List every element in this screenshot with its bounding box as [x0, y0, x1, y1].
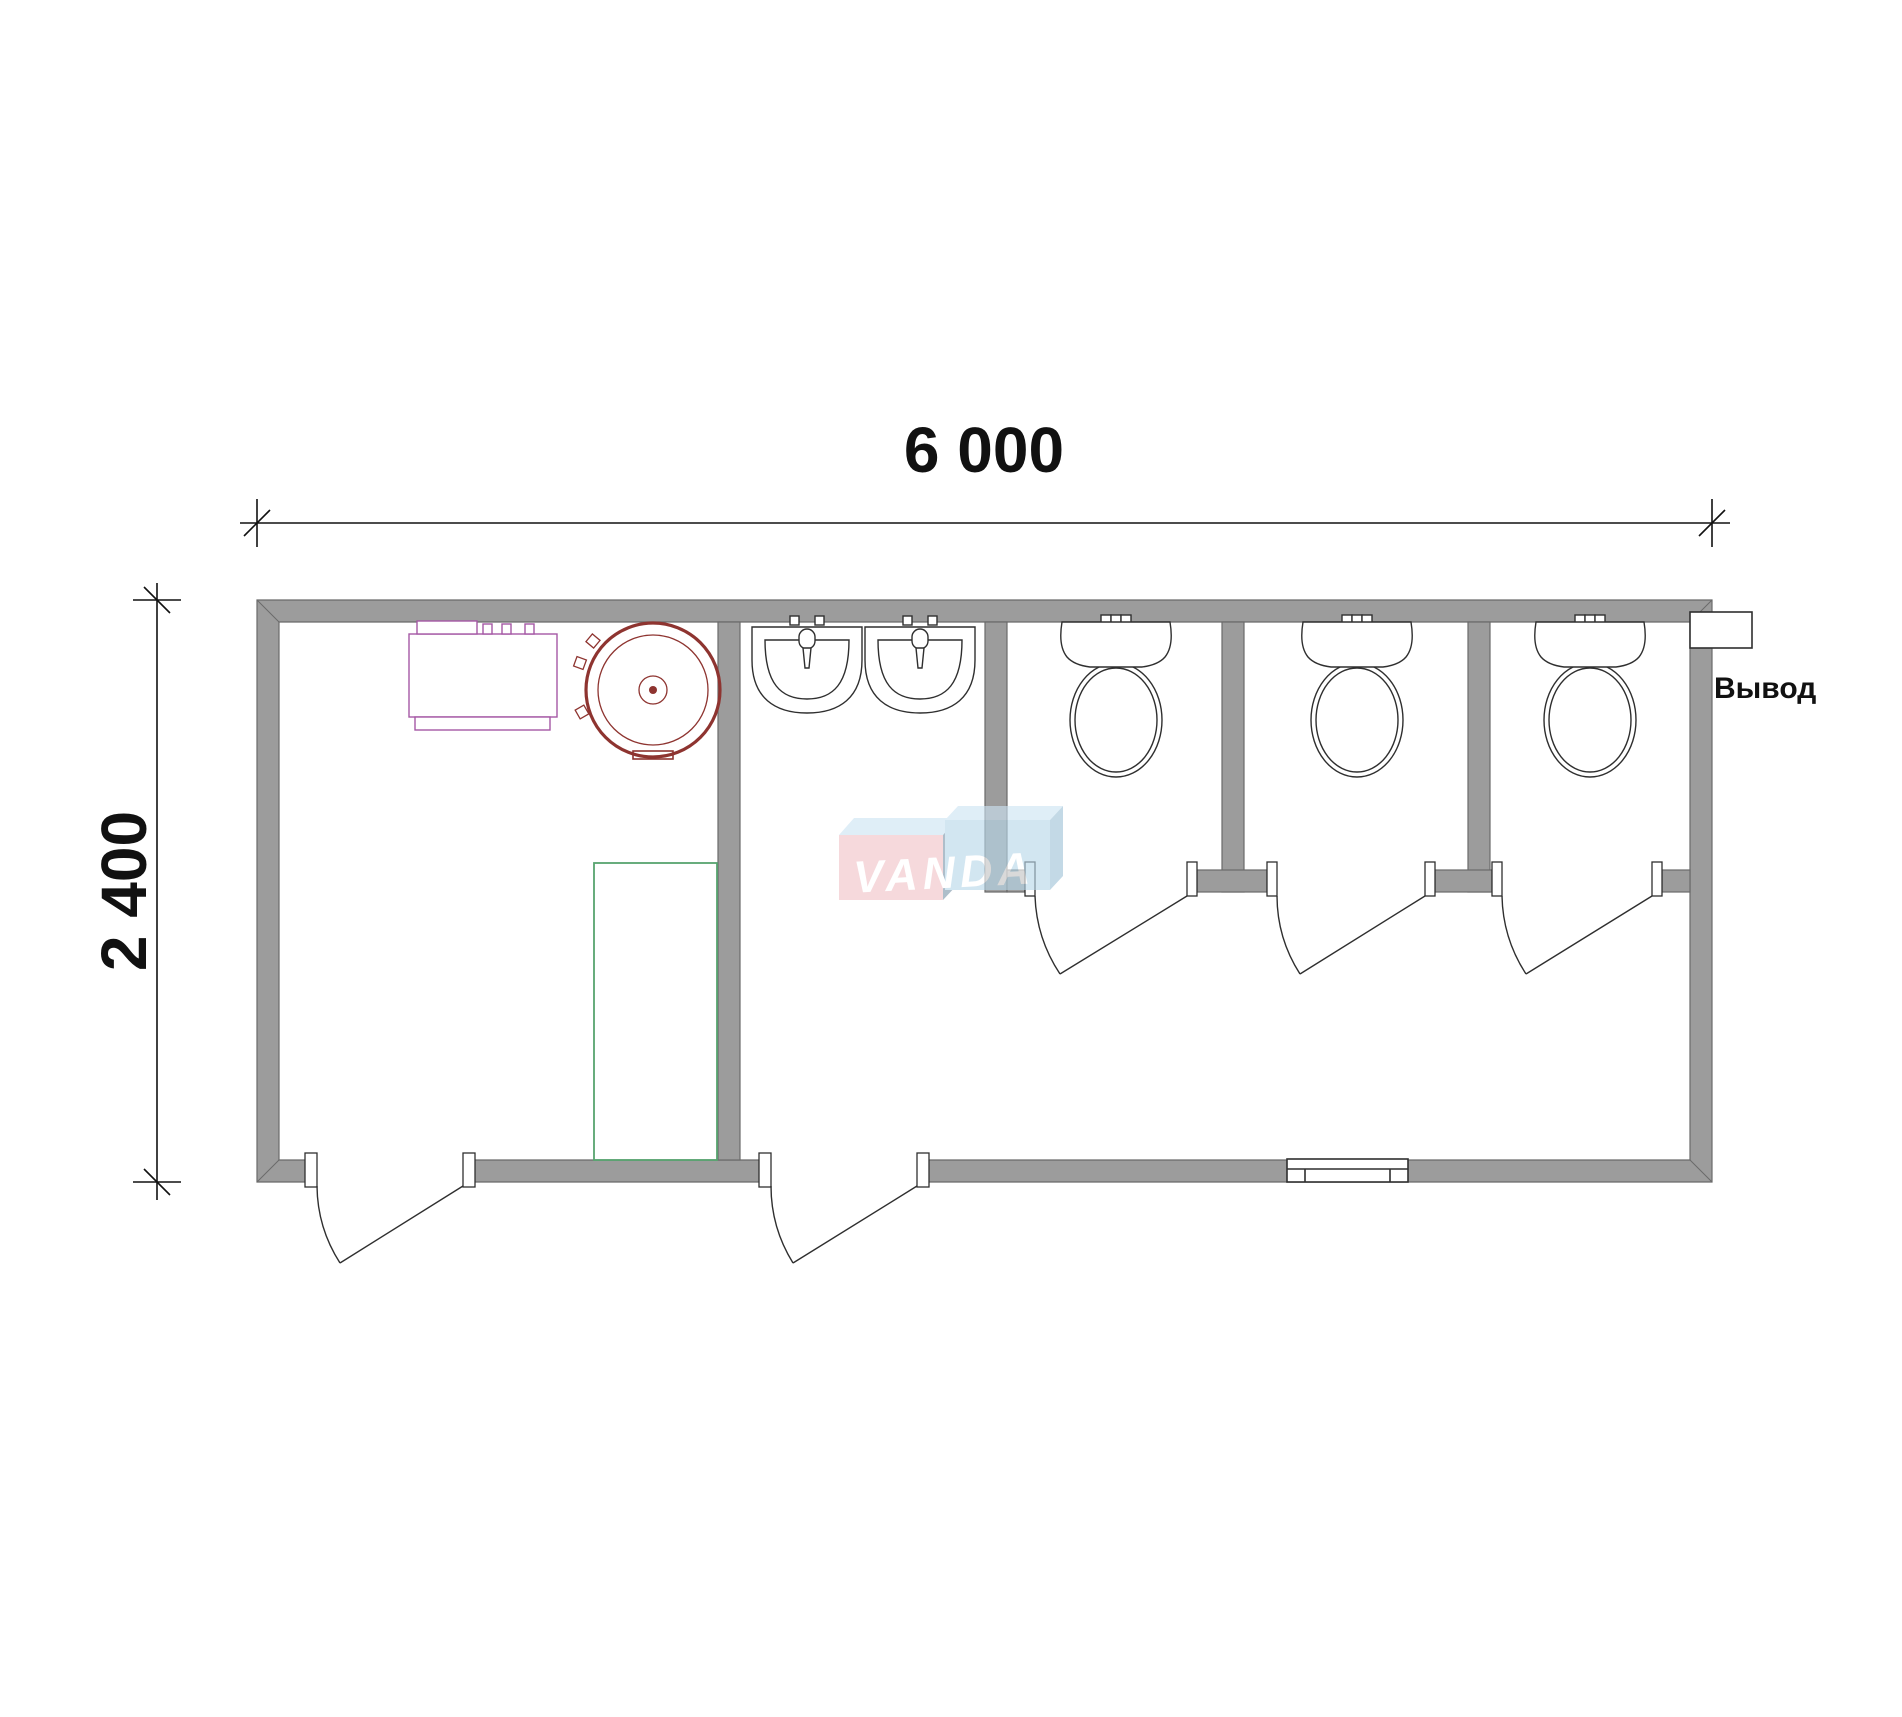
door-stall1 [1035, 896, 1187, 974]
floor-plan-canvas: 6 000 2 400 [0, 0, 1902, 1717]
door-jamb [1492, 862, 1502, 896]
equipment-body [409, 634, 557, 717]
door-jamb [1267, 862, 1277, 896]
watermark-text: VANDA [852, 842, 1036, 902]
dimension-horizontal: 6 000 [240, 414, 1730, 547]
outlet-box [1690, 612, 1752, 648]
door-jamb [1187, 862, 1197, 896]
equipment-unit [409, 621, 557, 730]
watermark-blue-side [1050, 806, 1063, 890]
equipment-base [415, 717, 550, 730]
stall-front-wall [1197, 870, 1267, 892]
door-jamb [463, 1153, 475, 1187]
vanda-watermark: VANDA [839, 806, 1063, 903]
toilets [1061, 615, 1645, 777]
water-heater-tab [586, 634, 600, 648]
water-heater-tab [574, 657, 587, 670]
width-dimension-label: 6 000 [904, 414, 1064, 486]
water-heater-center [649, 686, 657, 694]
sinks [752, 616, 975, 713]
watermark-pink-top [839, 818, 958, 835]
equipment-connector [483, 624, 492, 634]
partition-room-divider [718, 622, 740, 1160]
watermark-blue-top [945, 806, 1063, 820]
door-swings [317, 896, 1652, 1263]
outlet-label: Вывод [1714, 672, 1816, 705]
door-washroom [771, 1186, 917, 1263]
door-jamb [1425, 862, 1435, 896]
sink-1 [752, 616, 862, 713]
equipment-connector [525, 624, 534, 634]
toilet-3 [1535, 615, 1645, 777]
stall-front-wall [1435, 870, 1492, 892]
door-stall3 [1502, 896, 1652, 974]
equipment-wall-tab [417, 621, 477, 634]
height-dimension-label: 2 400 [88, 811, 160, 971]
door-jamb [917, 1153, 929, 1187]
shower-tray [594, 863, 717, 1160]
door-jamb [759, 1153, 771, 1187]
window [1287, 1159, 1408, 1182]
toilet-1 [1061, 615, 1171, 777]
stall-front-wall [1662, 870, 1690, 892]
door-jamb [1652, 862, 1662, 896]
partition-stall1-stall2 [1222, 622, 1244, 892]
sink-2 [865, 616, 975, 713]
equipment-connector [502, 624, 511, 634]
toilet-2 [1302, 615, 1412, 777]
water-heater [574, 623, 720, 759]
door-jambs [305, 862, 1662, 1187]
door-room1 [317, 1186, 463, 1263]
door-jamb [305, 1153, 317, 1187]
dimension-vertical: 2 400 [88, 583, 181, 1200]
partition-stall2-stall3 [1468, 622, 1490, 892]
door-stall2 [1277, 896, 1425, 974]
